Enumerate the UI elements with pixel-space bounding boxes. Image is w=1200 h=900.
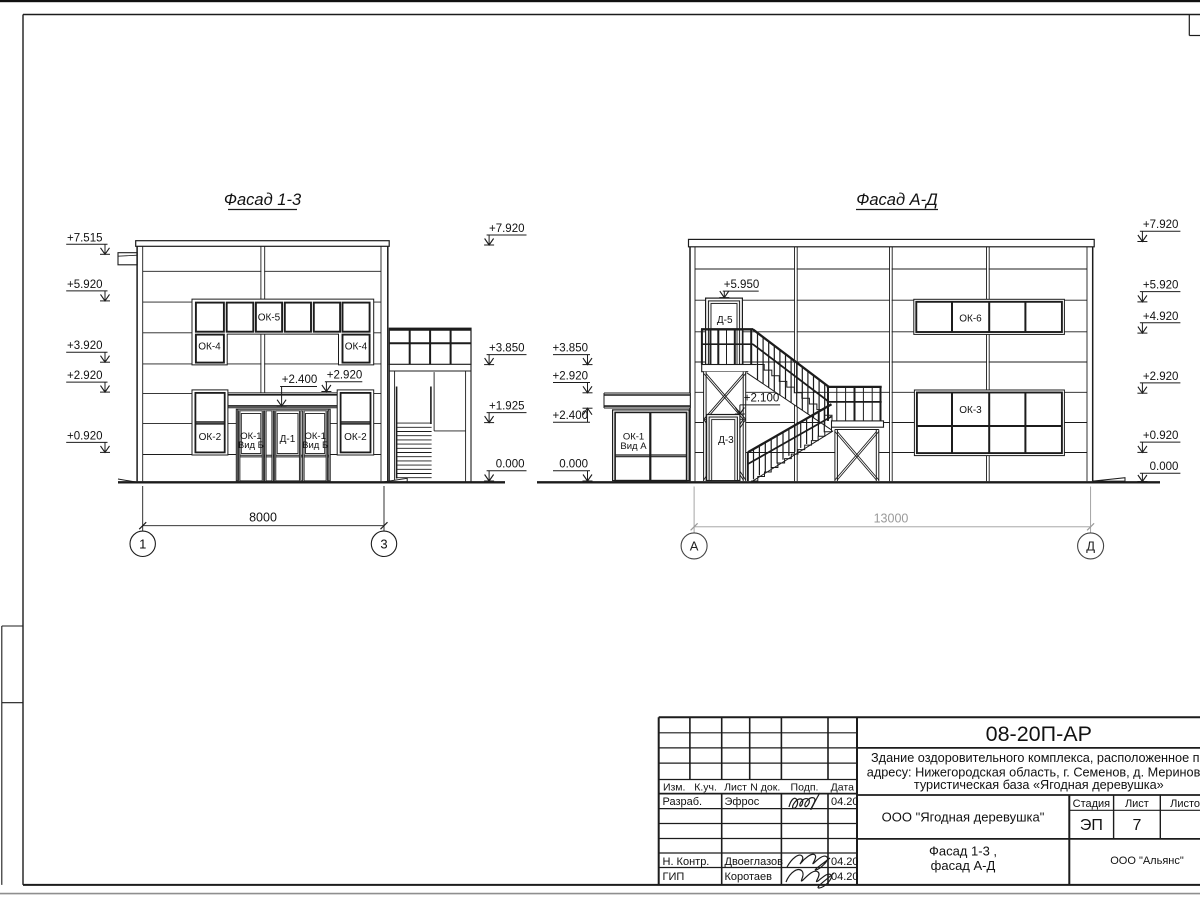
svg-text:Стадия: Стадия [1073,798,1111,810]
svg-text:Разраб.: Разраб. [663,796,703,808]
svg-text:Двоеглазов: Двоеглазов [725,856,784,868]
svg-text:Фасад А-Д: Фасад А-Д [856,191,938,209]
svg-text:Эфрос: Эфрос [725,796,760,808]
svg-text:+3.850: +3.850 [489,343,525,355]
svg-text:+2.920: +2.920 [67,370,103,382]
svg-text:+5.950: +5.950 [724,279,760,291]
svg-text:ООО "Ягодная деревушка": ООО "Ягодная деревушка" [882,810,1045,825]
svg-text:ООО "Альянс": ООО "Альянс" [1110,855,1184,867]
svg-text:+2.920: +2.920 [327,369,363,381]
svg-text:+2.920: +2.920 [1143,371,1179,383]
svg-text:0.000: 0.000 [1150,461,1179,473]
svg-text:ОК-6: ОК-6 [959,314,982,325]
svg-text:ОК-3: ОК-3 [959,405,982,416]
svg-text:Н. Контр.: Н. Контр. [663,856,710,868]
svg-text:+5.920: +5.920 [1143,280,1179,292]
svg-text:+0.920: +0.920 [67,430,103,442]
svg-text:фасад А-Д: фасад А-Д [931,858,996,873]
svg-text:Д-3: Д-3 [718,435,734,446]
svg-text:ЭП: ЭП [1080,817,1103,834]
svg-text:+2.100: +2.100 [744,393,780,405]
svg-text:ОК-4: ОК-4 [198,342,221,353]
svg-text:+0.920: +0.920 [1143,430,1179,442]
svg-text:+2.920: +2.920 [553,371,589,383]
svg-text:Д: Д [1086,539,1095,554]
svg-text:К.уч.: К.уч. [694,781,717,793]
svg-text:+4.920: +4.920 [1143,311,1179,323]
svg-text:+2.400: +2.400 [282,374,318,386]
svg-text:+3.850: +3.850 [553,343,589,355]
svg-text:7: 7 [1132,817,1141,834]
svg-text:+7.920: +7.920 [489,223,525,235]
svg-text:+3.920: +3.920 [67,340,103,352]
svg-text:туристическая база «Ягодная де: туристическая база «Ягодная деревушка» [914,778,1164,792]
svg-text:Дата: Дата [831,781,854,793]
svg-text:+7.920: +7.920 [1143,219,1179,231]
svg-text:Д-1: Д-1 [280,434,296,445]
svg-text:ОК-2: ОК-2 [199,432,222,443]
svg-text:13000: 13000 [874,511,909,525]
svg-text:N док.: N док. [750,781,780,793]
svg-text:+2.400: +2.400 [553,410,589,422]
svg-text:8000: 8000 [249,510,277,524]
svg-text:1: 1 [139,537,146,552]
svg-text:Лист: Лист [1125,798,1149,810]
svg-text:+5.920: +5.920 [67,279,103,291]
svg-text:Коротаев: Коротаев [725,871,773,883]
svg-text:Листов: Листов [1170,798,1200,810]
svg-text:ОК-5: ОК-5 [258,312,281,323]
svg-text:Изм.: Изм. [663,781,686,793]
svg-text:Вид Б: Вид Б [302,440,328,451]
svg-text:Подп.: Подп. [791,781,819,793]
svg-text:Здание оздоровительного компле: Здание оздоровительного комплекса, распо… [871,751,1200,765]
svg-text:+7.515: +7.515 [67,232,103,244]
svg-text:04.20: 04.20 [831,796,859,808]
svg-text:ОК-4: ОК-4 [345,342,368,353]
svg-text:0.000: 0.000 [496,459,525,471]
svg-text:А: А [690,539,699,554]
svg-text:Вид Б: Вид Б [238,440,264,451]
svg-text:3: 3 [380,537,387,552]
svg-text:0.000: 0.000 [559,459,588,471]
svg-text:Фасад 1-3: Фасад 1-3 [224,191,302,209]
svg-text:Д-5: Д-5 [717,315,733,326]
svg-text:08-20П-АР: 08-20П-АР [986,722,1092,746]
svg-text:Вид А: Вид А [620,441,647,452]
svg-text:04.20: 04.20 [831,871,859,883]
svg-text:Лист: Лист [724,781,747,793]
svg-text:ОК-2: ОК-2 [344,432,367,443]
svg-text:+1.925: +1.925 [489,401,525,413]
svg-text:ГИП: ГИП [663,871,685,883]
svg-text:04.20: 04.20 [831,856,859,868]
svg-text:Фасад 1-3 ,: Фасад 1-3 , [929,843,997,858]
